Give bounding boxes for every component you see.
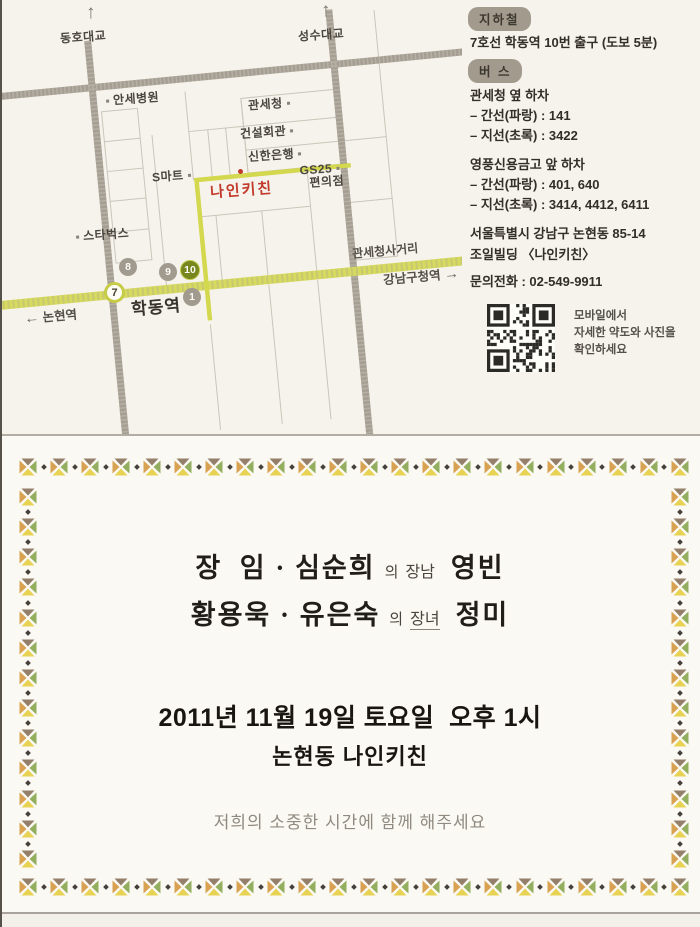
border-dot [351,464,357,470]
exit-1-badge: 1 [183,288,201,306]
map-card: ↑ 동호대교 ↑ 성수대교 안세병원 관세청 건설회관 신한은행 S마트 GS2… [0,0,700,434]
bus-stop-1-title: 관세청 옆 하차 [470,86,549,106]
rosette-ornament [483,457,503,477]
qr-caption: 모바일에서 자세한 약도와 사진을 확인하세요 [574,308,676,359]
bride-line: 황용욱 · 유은숙의장녀정미 [0,593,700,632]
main-roads [0,0,462,434]
rosette-ornament [452,457,472,477]
border-dot [677,841,683,847]
border-dot [227,464,233,470]
rosette-ornament [328,877,348,897]
rosette-ornament [235,457,255,477]
place-s-mart: S마트 [151,166,195,186]
border-dot [413,884,419,890]
border-dot [103,884,109,890]
border-dot [196,464,202,470]
place-marker-dot [106,100,109,103]
rosette-ornament [297,457,317,477]
border-dot [444,464,450,470]
invitation-message: 저희의 소중한 시간에 함께 해주세요 [0,808,700,833]
rosette-ornament [483,877,503,897]
north-arrow-seongsu: ↑ [321,0,331,22]
rosette-ornament [421,457,441,477]
border-dot [382,884,388,890]
place-marker-dot [290,130,293,133]
border-dot [258,884,264,890]
bride-particle: 의 [389,612,403,628]
rosette-ornament [80,877,100,897]
groom-parents-names: 장 임 · 심순희 [195,553,375,583]
rosette-ornament [670,789,690,809]
border-dot [677,539,683,545]
rosette-ornament [266,877,286,897]
border-dot [661,884,667,890]
border-dot [134,884,140,890]
rosette-ornament [173,877,193,897]
border-dot [677,509,683,515]
area-map: ↑ 동호대교 ↑ 성수대교 안세병원 관세청 건설회관 신한은행 S마트 GS2… [0,0,462,434]
place-marker-dot [287,102,290,105]
rosette-ornament [670,457,690,477]
border-dot [413,464,419,470]
border-dot [25,841,31,847]
rosette-ornament [142,877,162,897]
border-dot [475,464,481,470]
rosette-ornament [670,638,690,658]
border-dot [25,509,31,515]
rosette-ornament [49,877,69,897]
scan-left-edge [0,0,2,927]
place-customs-office: 관세청 [247,93,294,113]
map-roads-drawing [0,0,462,434]
left-arrow-icon: ← [23,309,39,327]
border-dot [382,464,388,470]
right-arrow-icon: → [443,265,459,283]
subway-directions: 7호선 학동역 10번 출구 (도보 5분) [470,33,657,53]
border-dot [677,690,683,696]
rosette-ornament [18,668,38,688]
phone-number: 문의전화 : 02-549-9911 [470,272,602,292]
rosette-ornament [266,457,286,477]
venue-address-line2: 조일빌딩 〈나인키친〉 [470,245,595,265]
bride-parents-names: 황용욱 · 유은숙 [191,600,381,630]
rosette-ornament [18,487,38,507]
place-marker-dot [336,167,339,170]
border-dot [475,884,481,890]
border-dot [165,884,171,890]
rosette-ornament [173,457,193,477]
rosette-ornament [546,877,566,897]
border-dot [41,464,47,470]
rosette-ornament [80,457,100,477]
border-dot [258,464,264,470]
groom-particle: 의 [385,565,399,581]
border-dot [134,464,140,470]
bus-stop-2-title: 영풍신용금고 앞 하차 [470,155,585,175]
rosette-ornament [639,877,659,897]
border-dot [196,884,202,890]
rosette-ornament [608,877,628,897]
place-gs25: GS25 편의점 [299,162,344,191]
bridge-label-dongho: 동호대교 [59,26,106,46]
rosette-ornament [515,877,535,897]
border-dot [506,884,512,890]
border-dot [72,884,78,890]
rosette-ornament [204,457,224,477]
rosette-ornament [577,457,597,477]
rosette-ornament [670,668,690,688]
border-dot [289,884,295,890]
rosette-ornament [18,877,38,897]
border-dot [444,884,450,890]
place-marker-dot [188,174,191,177]
bus-stop-2-line-1: – 간선(파랑) : 401, 640 [470,175,600,195]
border-dot [630,464,636,470]
rosette-ornament [577,877,597,897]
bus-stop-2-line-2: – 지선(초록) : 3414, 4412, 6411 [470,195,649,215]
border-dot [599,464,605,470]
rosette-ornament [670,487,690,507]
border-dot [537,464,543,470]
exit-10-badge: 10 [180,260,200,280]
road-texture [0,0,462,434]
border-dot [506,464,512,470]
border-dot [103,464,109,470]
rosette-ornament [204,877,224,897]
border-dot [661,464,667,470]
border-dot [72,464,78,470]
bride-relation: 장녀 [410,611,439,630]
rosette-ornament [359,457,379,477]
border-dot [41,884,47,890]
border-dot [351,884,357,890]
border-dot [320,464,326,470]
rosette-ornament [670,849,690,869]
rosette-ornament [18,457,38,477]
rosette-ornament [297,877,317,897]
rosette-ornament [18,517,38,537]
rosette-ornament [390,457,410,477]
wedding-venue: 논현동 나인키친 [0,739,700,771]
rosette-ornament [359,877,379,897]
bus-stop-1-line-2: – 지선(초록) : 3422 [470,126,578,146]
rosette-ornament [670,877,690,897]
north-arrow-dongho: ↑ [86,2,96,24]
groom-relation: 장남 [405,564,434,581]
bride-name: 정미 [456,600,510,630]
bridge-label-seongsu: 성수대교 [297,24,344,44]
rosette-ornament [546,457,566,477]
border-dot [289,464,295,470]
border-dot [25,660,31,666]
wedding-datetime: 2011년 11월 19일 토요일 오후 1시 [0,698,700,734]
border-dot [25,781,31,787]
rosette-ornament [608,457,628,477]
border-dot [320,884,326,890]
exit-8-badge: 8 [119,258,137,276]
bus-badge: 버 스 [468,59,522,83]
venue-dot [238,169,243,174]
rosette-ornament [111,877,131,897]
invitation-card: 장 임 · 심순희의장남영빈 황용욱 · 유은숙의장녀정미 2011년 11월 … [0,436,700,913]
ornament-border-top [18,457,690,477]
rosette-ornament [670,517,690,537]
groom-line: 장 임 · 심순희의장남영빈 [0,546,700,585]
station-name-hakdong: 학동역 [130,291,182,320]
rosette-ornament [515,457,535,477]
rosette-ornament [452,877,472,897]
ornament-border-bottom [18,877,690,897]
rosette-ornament [18,638,38,658]
rosette-ornament [142,457,162,477]
subway-line7-badge: 7 [104,282,125,303]
rosette-ornament [639,457,659,477]
border-dot [537,884,543,890]
border-dot [227,884,233,890]
rosette-ornament [49,457,69,477]
rosette-ornament [18,789,38,809]
border-dot [677,660,683,666]
groom-name: 영빈 [451,553,505,583]
rosette-ornament [421,877,441,897]
venue-map-label: 나인키친 [209,177,274,202]
venue-address-line1: 서울특별시 강남구 논현동 85-14 [470,224,646,244]
border-dot [568,464,574,470]
rosette-ornament [390,877,410,897]
rosette-ornament [18,849,38,869]
border-dot [630,884,636,890]
rosette-ornament [111,457,131,477]
scan-margin [0,914,700,927]
rosette-ornament [235,877,255,897]
place-marker-dot [298,153,301,156]
qr-code [487,304,555,377]
subway-badge: 지하철 [468,7,531,31]
border-dot [165,464,171,470]
border-dot [568,884,574,890]
exit-9-badge: 9 [159,263,177,281]
border-dot [599,884,605,890]
border-dot [25,690,31,696]
border-dot [25,539,31,545]
place-marker-dot [76,236,79,239]
rosette-ornament [328,457,348,477]
border-dot [677,781,683,787]
bus-stop-1-line-1: – 간선(파랑) : 141 [470,106,571,126]
